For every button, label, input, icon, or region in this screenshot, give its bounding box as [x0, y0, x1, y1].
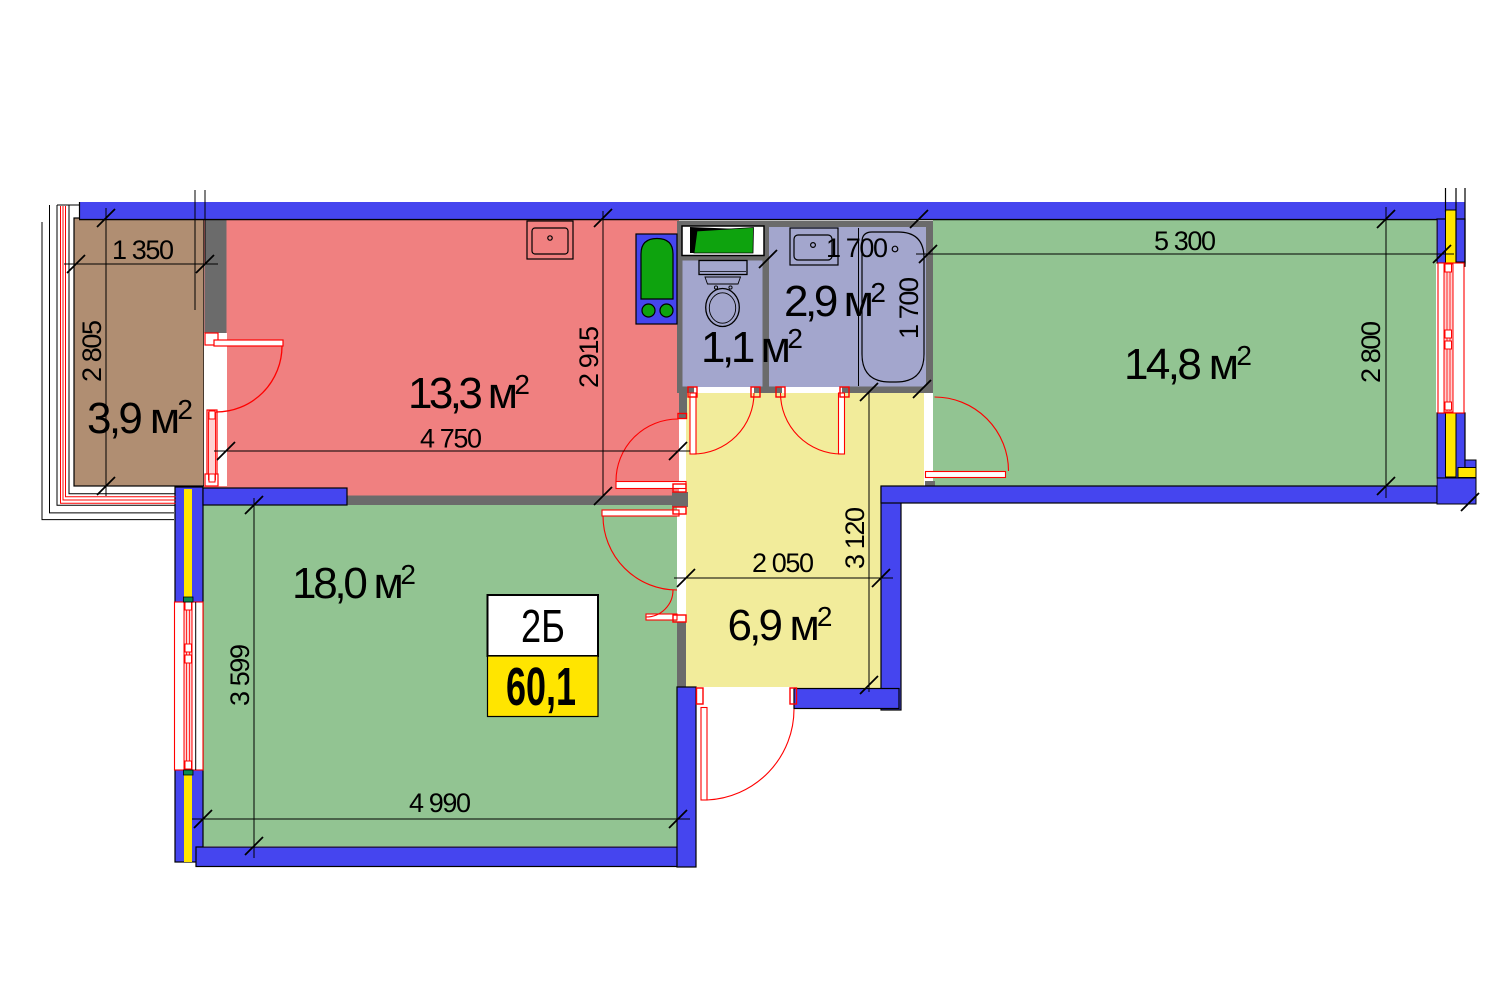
svg-text:2 805: 2 805: [77, 320, 107, 382]
svg-text:1 350: 1 350: [112, 235, 174, 265]
svg-text:3 599: 3 599: [225, 644, 255, 706]
svg-text:2 050: 2 050: [752, 548, 814, 578]
svg-text:1 700: 1 700: [894, 277, 924, 339]
svg-text:6,9 м2: 6,9 м2: [728, 601, 833, 650]
svg-text:18,0 м2: 18,0 м2: [292, 559, 416, 608]
svg-text:1 700: 1 700: [826, 233, 888, 263]
svg-text:2Б: 2Б: [521, 600, 565, 652]
svg-text:60,1: 60,1: [506, 657, 576, 717]
svg-text:5 300: 5 300: [1154, 226, 1216, 256]
svg-text:4 990: 4 990: [409, 788, 471, 818]
svg-text:2,9 м2: 2,9 м2: [784, 277, 886, 326]
svg-text:13,3 м2: 13,3 м2: [408, 369, 530, 418]
svg-text:3,9 м2: 3,9 м2: [87, 394, 193, 443]
svg-text:3 120: 3 120: [840, 507, 870, 569]
svg-text:2 800: 2 800: [1356, 321, 1386, 383]
svg-text:4 750: 4 750: [420, 424, 482, 454]
svg-text:2 915: 2 915: [574, 326, 604, 388]
svg-text:1,1 м2: 1,1 м2: [701, 323, 803, 372]
svg-text:14,8 м2: 14,8 м2: [1124, 340, 1252, 389]
